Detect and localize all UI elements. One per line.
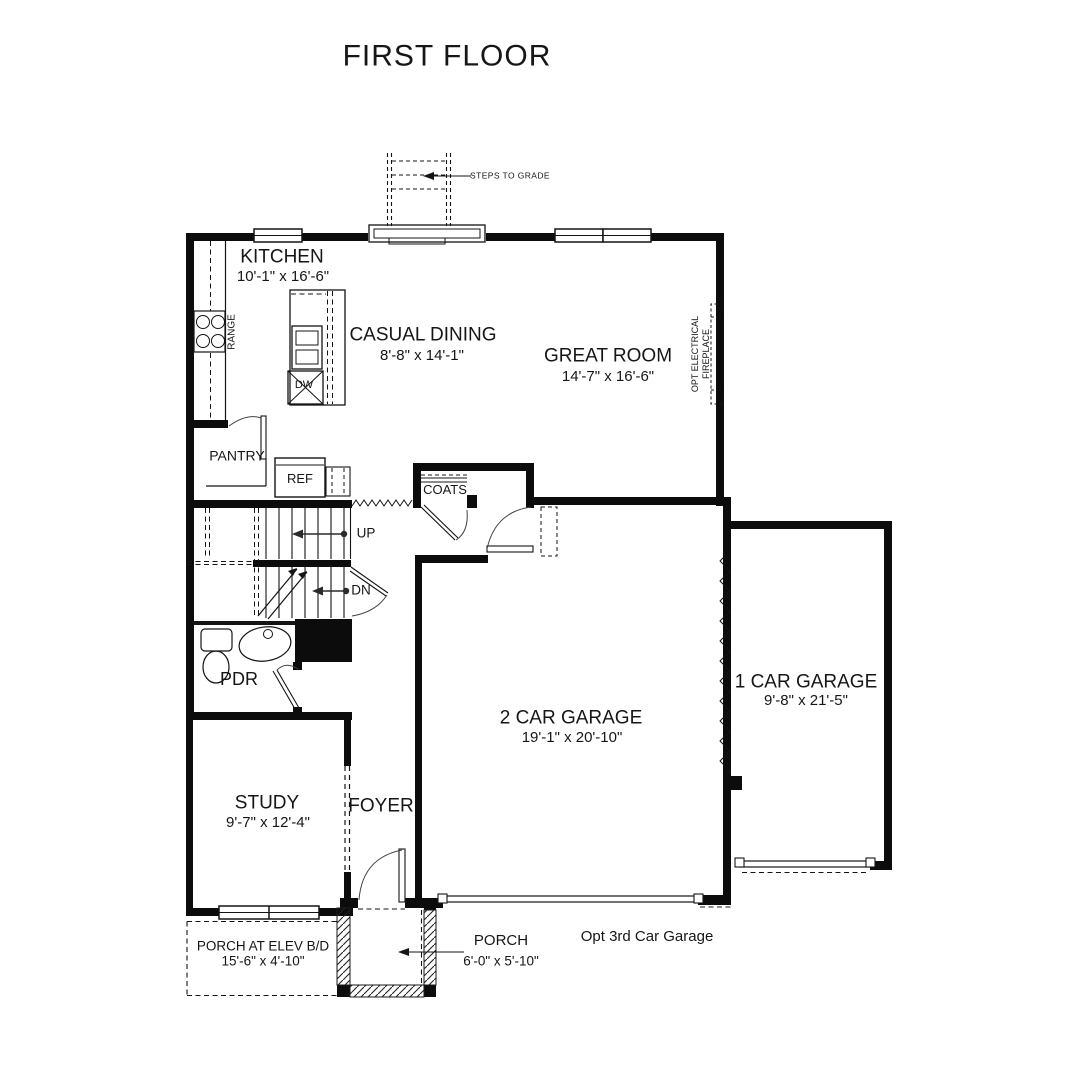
great-room-label: GREAT ROOM bbox=[544, 347, 672, 368]
drop-zone-dashed bbox=[541, 507, 557, 556]
cased-opening-dashed bbox=[345, 766, 350, 872]
coats-label: COATS bbox=[423, 483, 467, 497]
porch-elev-label: PORCH AT ELEV B/D bbox=[197, 940, 329, 955]
floor-plan-drawing bbox=[0, 0, 1087, 1086]
study-dims: 9'-7" x 12'-4" bbox=[226, 815, 310, 832]
porch-elev-dims: 15'-6" x 4'-10" bbox=[221, 955, 304, 970]
steps-to-grade-label: STEPS TO GRADE bbox=[470, 171, 550, 180]
foyer-label: FOYER bbox=[348, 797, 413, 818]
casual-dining-label: CASUAL DINING bbox=[349, 326, 496, 347]
insulation-zigzag-horizontal bbox=[352, 500, 412, 506]
garage-entry-door bbox=[487, 507, 533, 552]
page-title: FIRST FLOOR bbox=[343, 40, 552, 73]
range bbox=[194, 311, 225, 352]
fireplace-label: OPT ELECTRICAL FIREPLACE bbox=[690, 316, 712, 392]
garage-1car-label: 1 CAR GARAGE bbox=[735, 673, 878, 694]
great-room-dims: 14'-7" x 16'-6" bbox=[562, 369, 654, 386]
up-label: UP bbox=[357, 527, 376, 542]
garage-1car-dims: 9'-8" x 21'-5" bbox=[764, 693, 848, 710]
floor-plan-page: FIRST FLOOR STEPS TO GRADE KITCHEN 10'-1… bbox=[0, 0, 1087, 1086]
up-arrow bbox=[292, 530, 347, 539]
garage-door-2car bbox=[438, 894, 731, 907]
range-label: RANGE bbox=[227, 314, 238, 350]
study-label: STUDY bbox=[235, 794, 299, 815]
opt-3rd-car-garage-label: Opt 3rd Car Garage bbox=[581, 929, 714, 946]
fireplace-label-line2: FIREPLACE bbox=[701, 329, 711, 379]
steps-leader-arrow bbox=[423, 172, 471, 180]
stair-dashed-lines bbox=[187, 508, 259, 618]
front-door bbox=[359, 849, 405, 902]
porch-dims: 6'-0" x 5'-10" bbox=[463, 955, 539, 970]
pantry-label: PANTRY bbox=[209, 448, 265, 463]
pdr-door bbox=[273, 665, 299, 709]
slider-stoop bbox=[369, 225, 485, 244]
porch-label: PORCH bbox=[474, 933, 528, 950]
pdr-label: PDR bbox=[220, 670, 258, 690]
stair-break-line bbox=[258, 568, 307, 619]
dn-label: DN bbox=[351, 584, 371, 599]
fireplace-label-line1: OPT ELECTRICAL bbox=[690, 316, 700, 392]
kitchen-dims: 10'-1" x 16'-6" bbox=[237, 269, 329, 286]
ref-cabinet bbox=[326, 467, 350, 496]
island-sink bbox=[292, 326, 322, 369]
garage-2car-label: 2 CAR GARAGE bbox=[500, 709, 643, 730]
garage-2car-dims: 19'-1" x 20'-10" bbox=[522, 730, 623, 747]
pdr-boundary bbox=[193, 621, 295, 625]
kitchen-label: KITCHEN bbox=[240, 248, 323, 269]
garage-door-1car bbox=[735, 858, 875, 873]
pdr-sink bbox=[237, 624, 293, 665]
dw-label: DW bbox=[295, 379, 313, 391]
casual-dining-dims: 8'-8" x 14'-1" bbox=[380, 348, 464, 365]
steps-to-grade bbox=[388, 153, 451, 226]
ref-label: REF bbox=[287, 472, 313, 486]
